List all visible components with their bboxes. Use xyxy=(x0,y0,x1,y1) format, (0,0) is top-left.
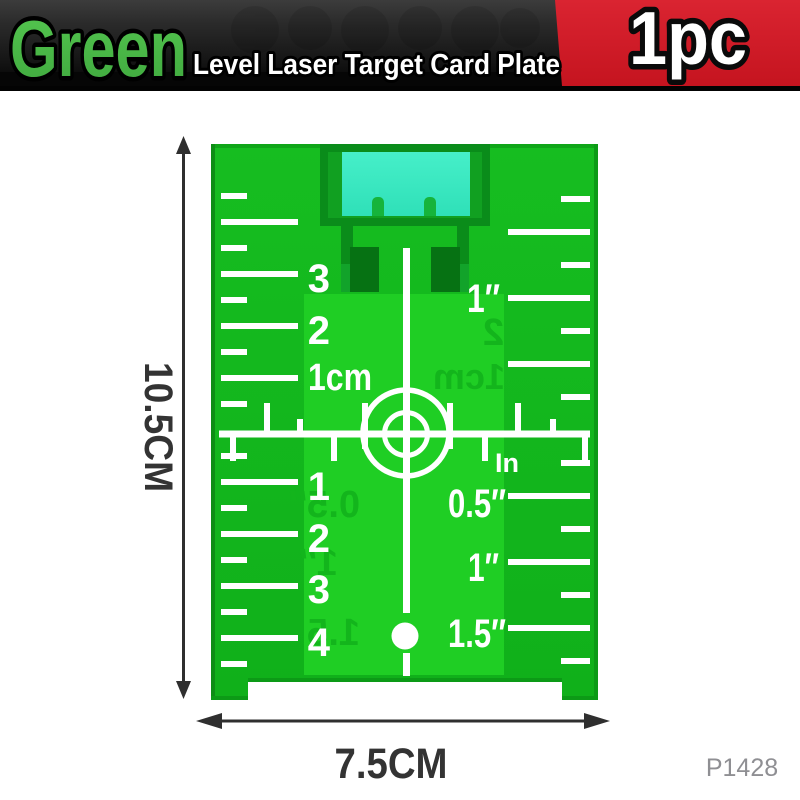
svg-text:4: 4 xyxy=(308,621,331,665)
svg-text:2: 2 xyxy=(308,517,330,561)
svg-text:1cm: 1cm xyxy=(433,356,505,397)
svg-text:0.5″: 0.5″ xyxy=(448,482,506,526)
svg-text:2: 2 xyxy=(308,309,330,353)
svg-text:Green: Green xyxy=(10,4,187,93)
svg-text:In: In xyxy=(495,448,519,478)
svg-text:Level Laser Target Card Plate: Level Laser Target Card Plate xyxy=(193,49,560,81)
svg-text:1: 1 xyxy=(308,465,330,509)
svg-text:3: 3 xyxy=(308,257,330,301)
svg-text:1″: 1″ xyxy=(467,277,500,321)
svg-text:10.5CM: 10.5CM xyxy=(136,362,180,492)
svg-text:3: 3 xyxy=(308,568,330,612)
svg-text:P1428: P1428 xyxy=(706,754,778,782)
svg-text:1pc: 1pc xyxy=(629,0,747,80)
svg-text:1cm: 1cm xyxy=(308,357,372,399)
svg-text:7.5CM: 7.5CM xyxy=(335,740,448,788)
svg-text:1.5″: 1.5″ xyxy=(448,612,506,656)
svg-text:1″: 1″ xyxy=(468,546,499,590)
